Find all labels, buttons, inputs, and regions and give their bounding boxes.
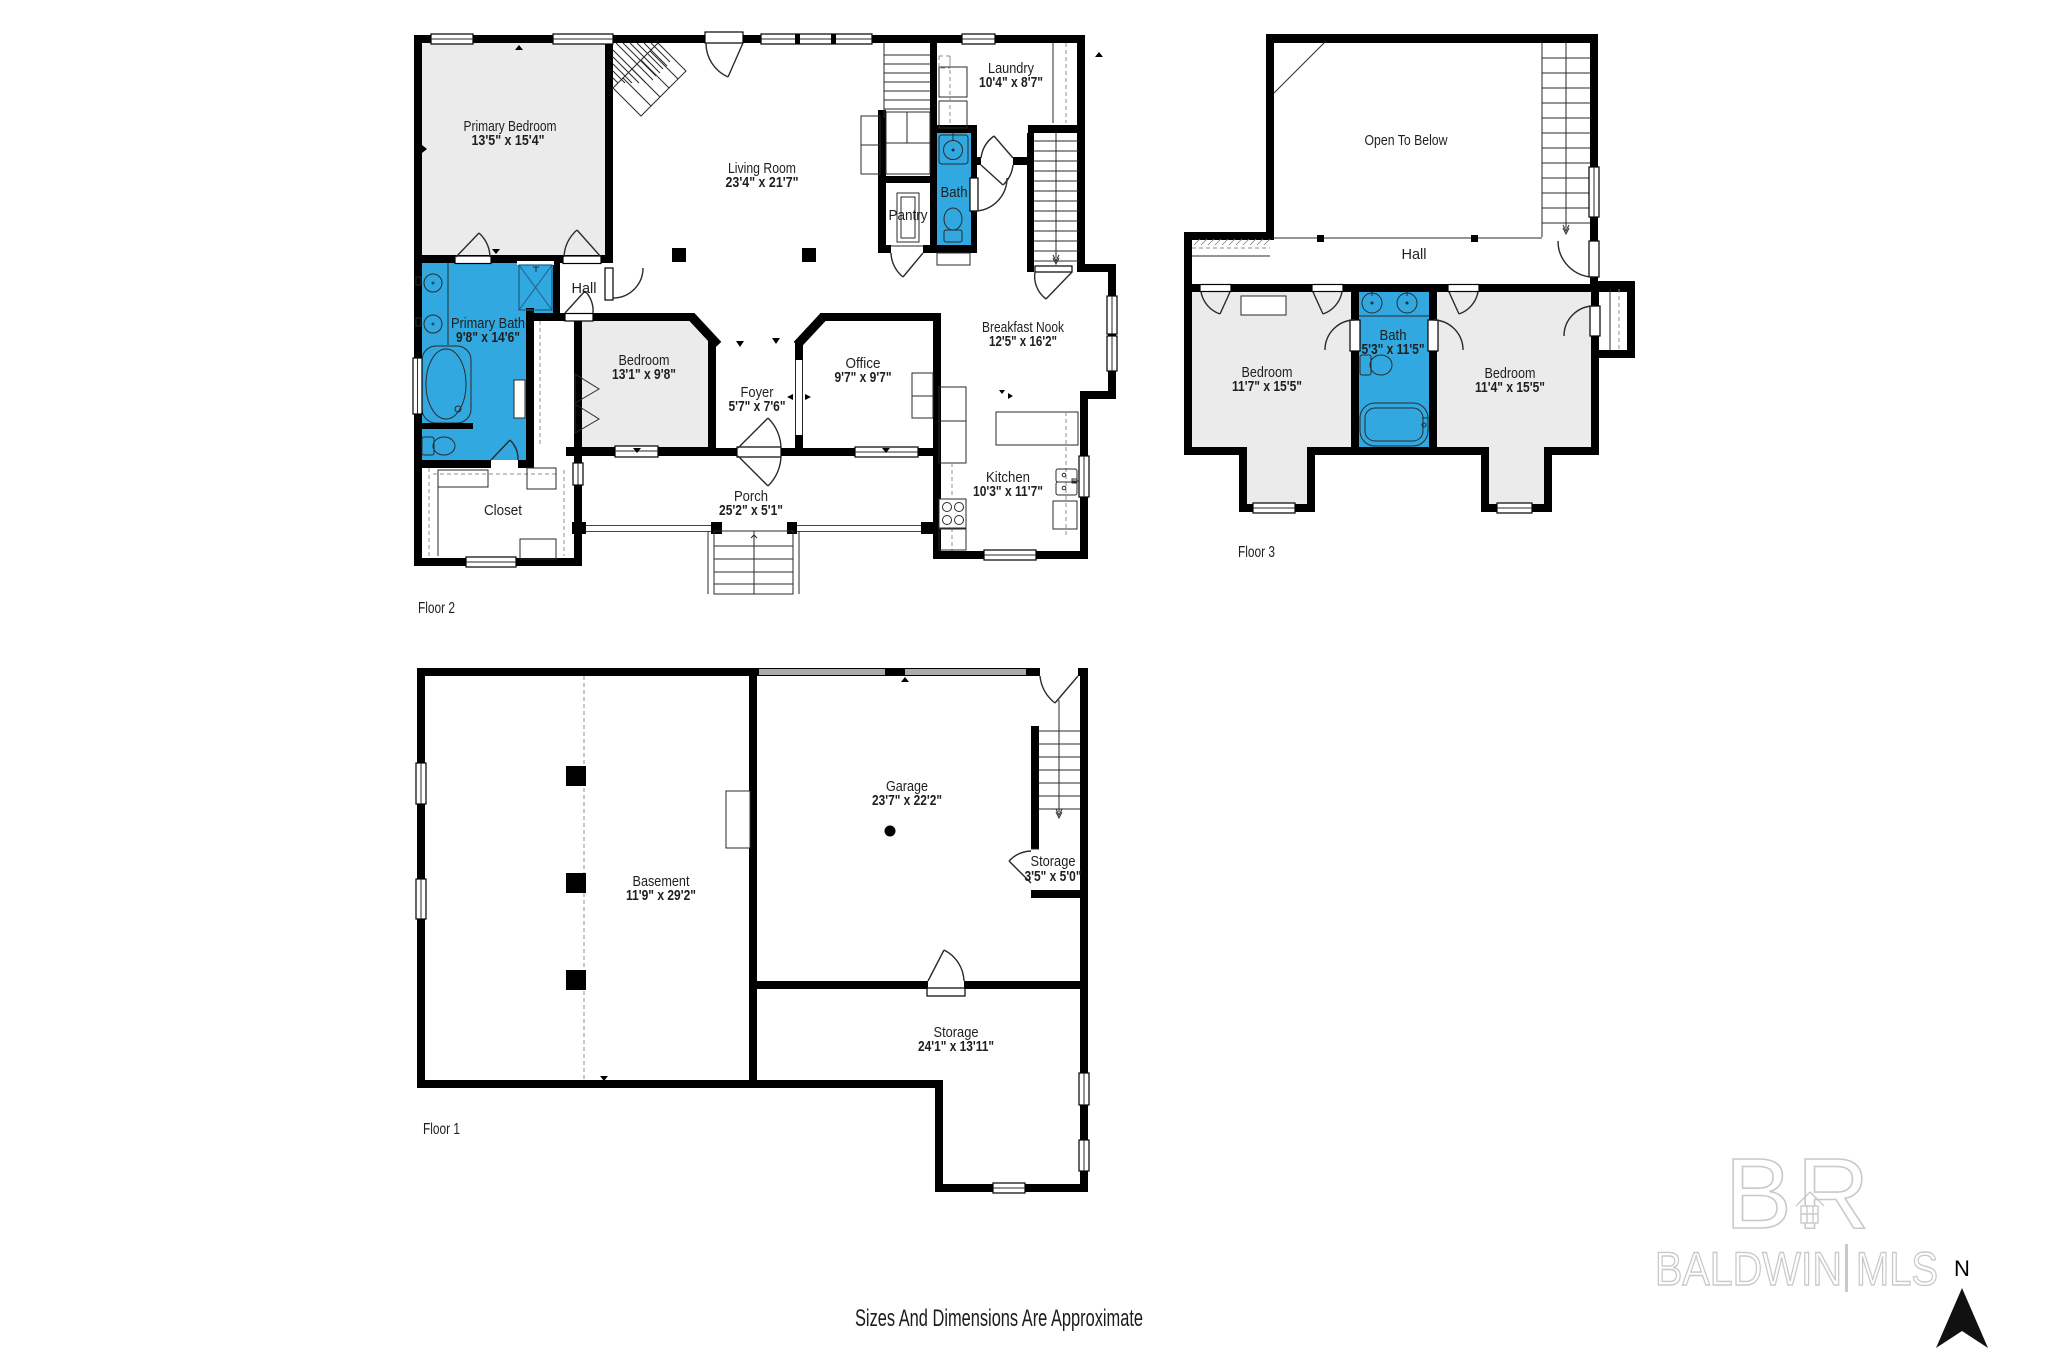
svg-text:5'3" x 11'5": 5'3" x 11'5"	[1362, 341, 1425, 358]
svg-text:11'7" x 15'5": 11'7" x 15'5"	[1232, 378, 1302, 395]
svg-text:Floor 1: Floor 1	[423, 1121, 460, 1138]
svg-text:Pantry: Pantry	[889, 207, 928, 224]
svg-text:Floor 2: Floor 2	[418, 600, 455, 617]
svg-text:12'5" x 16'2": 12'5" x 16'2"	[989, 333, 1057, 350]
svg-text:13'5" x 15'4": 13'5" x 15'4"	[472, 132, 545, 149]
svg-text:25'2" x 5'1": 25'2" x 5'1"	[719, 502, 783, 519]
svg-text:11'9" x 29'2": 11'9" x 29'2"	[626, 887, 696, 904]
svg-text:B: B	[1725, 1138, 1792, 1250]
svg-text:Sizes And Dimensions Are Appro: Sizes And Dimensions Are Approximate	[855, 1305, 1143, 1332]
svg-text:23'7" x 22'2": 23'7" x 22'2"	[872, 792, 942, 809]
svg-text:MLS: MLS	[1856, 1242, 1938, 1295]
svg-text:3'5" x 5'0": 3'5" x 5'0"	[1025, 868, 1082, 885]
svg-text:Bath: Bath	[941, 184, 968, 201]
svg-text:Floor 3: Floor 3	[1238, 544, 1275, 561]
svg-text:9'7" x 9'7": 9'7" x 9'7"	[835, 369, 892, 386]
svg-text:Closet: Closet	[484, 502, 523, 519]
svg-text:10'3" x 11'7": 10'3" x 11'7"	[973, 483, 1043, 500]
svg-text:23'4" x 21'7": 23'4" x 21'7"	[726, 174, 799, 191]
svg-text:10'4" x 8'7": 10'4" x 8'7"	[979, 74, 1043, 91]
svg-text:13'1" x 9'8": 13'1" x 9'8"	[612, 366, 676, 383]
svg-text:9'8" x 14'6": 9'8" x 14'6"	[456, 329, 520, 346]
svg-text:11'4" x 15'5": 11'4" x 15'5"	[1475, 379, 1545, 396]
svg-text:24'1" x 13'11": 24'1" x 13'11"	[918, 1038, 994, 1055]
svg-text:Hall: Hall	[572, 280, 597, 297]
svg-text:Open To Below: Open To Below	[1365, 132, 1448, 149]
svg-text:Hall: Hall	[1402, 246, 1427, 263]
svg-text:BALDWIN: BALDWIN	[1655, 1242, 1842, 1295]
svg-text:N: N	[1954, 1256, 1970, 1281]
svg-text:5'7" x 7'6": 5'7" x 7'6"	[729, 398, 786, 415]
